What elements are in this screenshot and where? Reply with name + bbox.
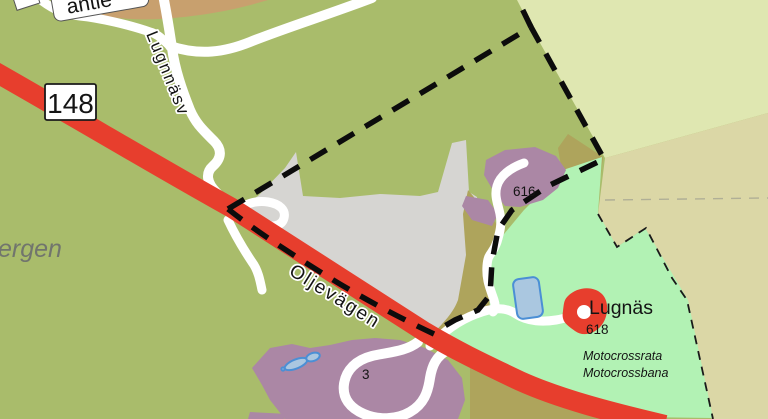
area-label-ergen: ergen (0, 235, 62, 263)
map-canvas: antie 25 148 Lugnnäsv Oljevägen ergen 61… (0, 0, 768, 419)
parcel-label-618: 618 (586, 322, 609, 337)
note-motocrossrata: Motocrossrata (583, 349, 662, 363)
pond-dot (281, 367, 284, 370)
map-viewport: antie 25 148 Lugnnäsv Oljevägen ergen 61… (0, 0, 768, 419)
place-label-lugnas: Lugnäs (589, 297, 653, 319)
pond-large (512, 276, 543, 319)
parcel-label-616: 616 (513, 184, 536, 199)
route-shield-148: 148 (45, 84, 96, 120)
route-shield-number: 148 (47, 88, 94, 119)
parcel-label-3: 3 (362, 367, 370, 382)
note-motocrossbana: Motocrossbana (583, 366, 669, 380)
